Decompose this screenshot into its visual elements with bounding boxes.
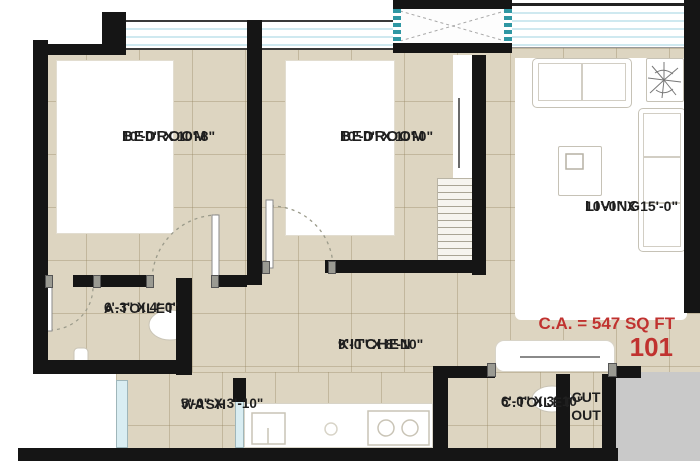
door-jamb — [328, 261, 336, 274]
room-dims: 10'-0" X 10'-0" — [340, 128, 433, 145]
door-jamb — [211, 275, 219, 288]
wall-bed2-living — [472, 55, 486, 275]
duct-frame-right — [504, 9, 512, 43]
bed-1 — [56, 60, 174, 234]
center-table — [558, 146, 602, 196]
door-jamb — [146, 275, 154, 288]
wall-bed1-bottom — [73, 275, 148, 287]
door-jamb — [45, 275, 53, 288]
floor-plan: BEDROOM 10'-0" X 10'-8" BEDROOM 10'-0" X… — [0, 0, 700, 461]
wall-top-step — [102, 12, 126, 55]
living-window-band — [512, 3, 686, 48]
wall-top-left — [33, 44, 113, 55]
door-jamb — [608, 363, 617, 377]
wall-kitchen-top — [325, 260, 475, 273]
wall-bed1-bottom-right — [219, 275, 247, 287]
wall-bottom — [18, 448, 618, 461]
duct-frame-left — [393, 9, 401, 43]
sofa-right-cushion — [643, 157, 681, 203]
wash-window-sill — [116, 380, 128, 448]
door-jamb — [93, 275, 101, 288]
bed-2 — [285, 60, 395, 236]
room-dims: 10'-0" X 10'-8" — [122, 128, 215, 145]
room-dims: 9'-0" X 8'-10" — [338, 336, 423, 353]
wall-atoilet-bottom — [33, 360, 188, 374]
unit-number-text: 101 — [630, 332, 673, 363]
sofa-right-cushion — [643, 113, 681, 157]
sofa-top-cushion — [582, 63, 626, 101]
carpet-area-text: C.A. = 547 SQ FT — [538, 314, 675, 334]
outside-area — [616, 372, 700, 461]
room-dims: 6'-0" X 3'-10" — [501, 394, 583, 410]
room-dims: 6'-3" X 4'-0" — [104, 300, 179, 316]
plant-box — [646, 58, 684, 102]
duct-box — [393, 9, 512, 43]
wall-right — [684, 0, 700, 313]
door-jamb — [262, 261, 270, 274]
wall-duct-bottom — [393, 43, 512, 53]
room-dims: 10'-0" X 15'-0" — [585, 198, 678, 215]
kitchen-counter — [244, 403, 433, 448]
wall-living-bottom-left — [433, 366, 495, 378]
main-door-slab — [495, 340, 615, 372]
wall-left — [33, 40, 48, 372]
sofa-top-cushion — [538, 63, 582, 101]
room-dims: 5'-0" X 3'-10" — [181, 396, 263, 412]
sliding-niche — [453, 55, 472, 179]
wardrobe-louver — [437, 178, 473, 262]
door-jamb — [487, 363, 496, 377]
wall-window-mullion — [247, 20, 262, 50]
wall-bedroom-divider — [247, 50, 262, 285]
wall-duct-top — [393, 0, 512, 9]
wall-kitchen-ctoilet — [433, 366, 448, 461]
